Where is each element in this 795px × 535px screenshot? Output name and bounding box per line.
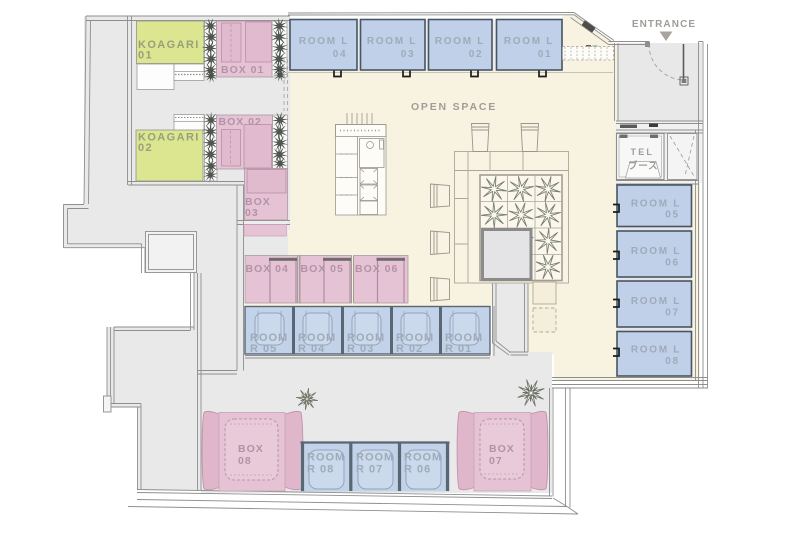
svg-text:ROOM L: ROOM L bbox=[631, 199, 681, 210]
svg-text:ROOM L: ROOM L bbox=[435, 36, 485, 47]
svg-text:02: 02 bbox=[138, 142, 153, 154]
svg-text:R 01: R 01 bbox=[445, 343, 472, 355]
svg-text:BOX: BOX bbox=[238, 443, 264, 455]
svg-text:ENTRANCE: ENTRANCE bbox=[632, 19, 696, 30]
svg-text:OPEN SPACE: OPEN SPACE bbox=[411, 101, 497, 113]
svg-text:ROOM L: ROOM L bbox=[631, 246, 681, 257]
svg-text:ROOM L: ROOM L bbox=[631, 345, 681, 356]
svg-text:R 03: R 03 bbox=[347, 343, 374, 355]
svg-text:R 05: R 05 bbox=[250, 343, 277, 355]
svg-text:R 08: R 08 bbox=[307, 464, 334, 476]
svg-text:ROOM: ROOM bbox=[356, 452, 394, 464]
svg-text:05: 05 bbox=[665, 210, 680, 221]
svg-text:BOX 05: BOX 05 bbox=[301, 263, 344, 275]
svg-text:BOX 01: BOX 01 bbox=[221, 64, 264, 76]
svg-text:03: 03 bbox=[245, 207, 259, 219]
svg-text:ブース: ブース bbox=[628, 160, 658, 172]
svg-text:06: 06 bbox=[665, 258, 680, 269]
svg-text:R 07: R 07 bbox=[356, 464, 383, 476]
svg-text:BOX 06: BOX 06 bbox=[355, 263, 398, 275]
svg-text:07: 07 bbox=[489, 455, 503, 467]
svg-text:ROOM L: ROOM L bbox=[504, 36, 554, 47]
svg-text:ROOM: ROOM bbox=[307, 452, 345, 464]
svg-text:ROOM L: ROOM L bbox=[631, 296, 681, 307]
svg-text:ROOM L: ROOM L bbox=[299, 36, 349, 47]
svg-text:ROOM: ROOM bbox=[404, 452, 442, 464]
svg-text:04: 04 bbox=[333, 49, 348, 60]
svg-text:BOX: BOX bbox=[489, 443, 515, 455]
svg-text:TEL: TEL bbox=[631, 147, 655, 157]
svg-text:BOX 02: BOX 02 bbox=[219, 116, 262, 128]
svg-text:R 02: R 02 bbox=[396, 343, 423, 355]
svg-text:ROOM L: ROOM L bbox=[367, 36, 417, 47]
svg-text:03: 03 bbox=[401, 49, 416, 60]
svg-text:R 06: R 06 bbox=[404, 464, 431, 476]
svg-text:01: 01 bbox=[538, 49, 553, 60]
svg-text:BOX 04: BOX 04 bbox=[246, 263, 289, 275]
svg-text:02: 02 bbox=[469, 49, 484, 60]
svg-text:R 04: R 04 bbox=[298, 343, 325, 355]
svg-text:08: 08 bbox=[238, 455, 252, 467]
svg-text:07: 07 bbox=[665, 308, 680, 319]
svg-text:01: 01 bbox=[138, 50, 153, 62]
svg-text:08: 08 bbox=[665, 356, 680, 367]
